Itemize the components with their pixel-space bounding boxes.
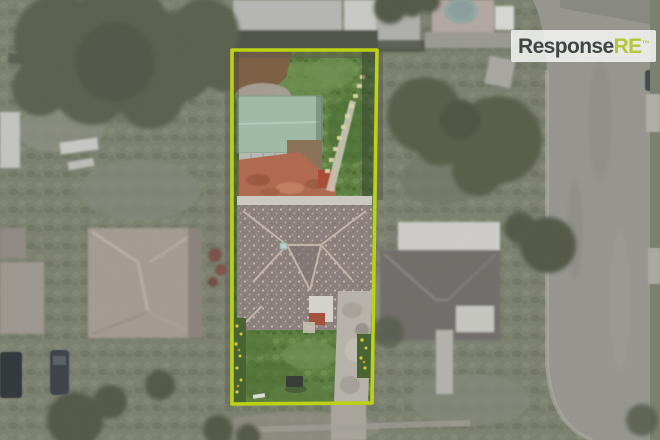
responsere-watermark: ResponseRE™ (511, 30, 656, 62)
trademark-symbol: ™ (642, 40, 649, 48)
watermark-text-primary: Response (518, 36, 614, 57)
watermark-text-accent: RE (614, 36, 642, 57)
grain-overlay (0, 0, 660, 440)
aerial-scene (0, 0, 660, 440)
aerial-photo-canvas: ResponseRE™ (0, 0, 660, 440)
